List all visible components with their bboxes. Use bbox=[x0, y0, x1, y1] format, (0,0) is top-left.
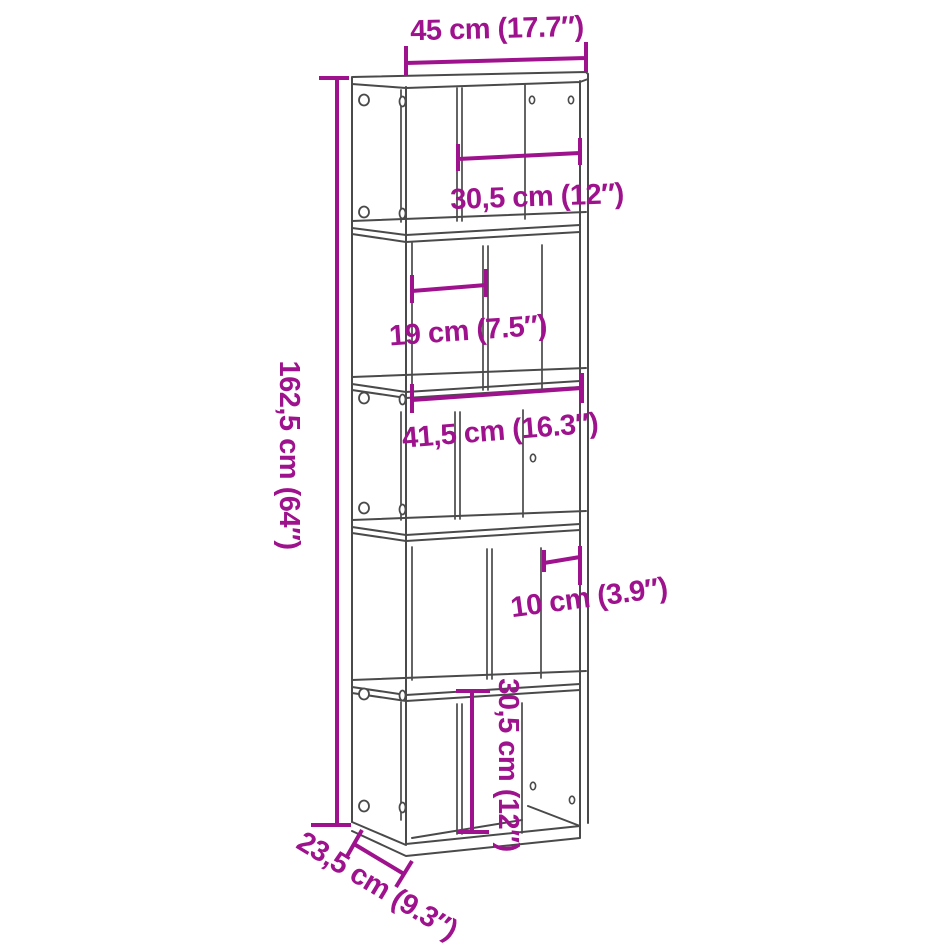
screw-hole bbox=[359, 393, 369, 404]
tier1-width-label: 30,5 cm (12″) bbox=[450, 178, 624, 216]
dimension-overall-width: 45 cm (17.7″) bbox=[406, 11, 586, 76]
tier5-height-label: 30,5 cm (12″) bbox=[492, 678, 524, 851]
dimension-tier1-width: 30,5 cm (12″) bbox=[450, 138, 624, 216]
screw-hole bbox=[400, 505, 406, 515]
pin-hole bbox=[530, 454, 535, 462]
diagram-canvas: 45 cm (17.7″) 30,5 cm (12″) 19 cm (7.5″)… bbox=[0, 0, 947, 947]
dimension-line bbox=[406, 42, 586, 76]
dimension-line bbox=[456, 691, 490, 832]
pin-hole bbox=[530, 782, 535, 790]
pin-hole bbox=[568, 96, 573, 104]
screw-hole bbox=[359, 801, 369, 812]
dimension-overall-depth: 23,5 cm (9.3″) bbox=[291, 826, 463, 947]
dimension-line bbox=[544, 546, 580, 585]
screw-hole bbox=[400, 209, 406, 219]
screw-hole bbox=[359, 689, 369, 700]
product-dimension-diagram: 45 cm (17.7″) 30,5 cm (12″) 19 cm (7.5″)… bbox=[0, 0, 947, 947]
overall-width-label: 45 cm (17.7″) bbox=[410, 11, 584, 48]
tier3-width-label: 41,5 cm (16.3″) bbox=[401, 407, 600, 454]
pin-hole bbox=[569, 796, 574, 804]
dimension-line bbox=[458, 138, 580, 171]
screw-hole bbox=[400, 803, 406, 813]
screw-hole bbox=[400, 691, 406, 701]
screw-holes bbox=[359, 95, 406, 813]
screw-hole bbox=[359, 207, 369, 218]
dimension-line bbox=[412, 269, 486, 303]
overall-height-label: 162,5 cm (64″) bbox=[273, 360, 305, 549]
dimension-overall-height: 162,5 cm (64″) bbox=[273, 78, 351, 825]
dimension-line bbox=[311, 78, 351, 825]
screw-hole bbox=[359, 95, 369, 106]
screw-hole bbox=[400, 97, 406, 107]
screw-hole bbox=[359, 503, 369, 514]
overall-depth-label: 23,5 cm (9.3″) bbox=[291, 826, 463, 947]
pin-hole bbox=[529, 96, 534, 104]
screw-hole bbox=[400, 395, 406, 405]
dimension-line bbox=[412, 373, 582, 413]
